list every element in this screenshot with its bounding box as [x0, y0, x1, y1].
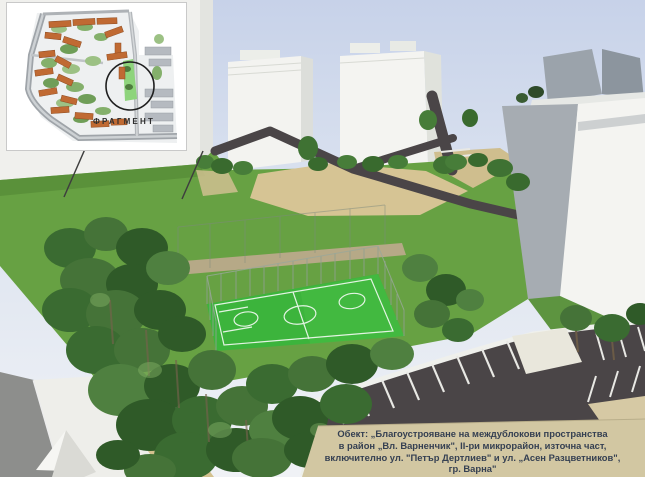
render-board: ФРАГМЕНТ Обект: „Благоустрояване на межд… — [0, 0, 645, 477]
site-plan-inset: ФРАГМЕНТ — [6, 2, 187, 151]
inset-fragment-label: ФРАГМЕНТ — [93, 117, 155, 126]
caption-line-4: гр. Варна" — [449, 463, 497, 475]
caption-line-3: включително ул. "Петър Дертлиев" и ул. „… — [325, 452, 621, 464]
project-caption: Обект: „Благоустрояване на междублокови … — [300, 426, 645, 477]
caption-line-2: в район „Вл. Варненчик", II-ри микрорайо… — [339, 440, 607, 452]
site-plan-drawing — [7, 3, 186, 150]
caption-line-1: Обект: „Благоустрояване на междублокови … — [337, 428, 607, 440]
